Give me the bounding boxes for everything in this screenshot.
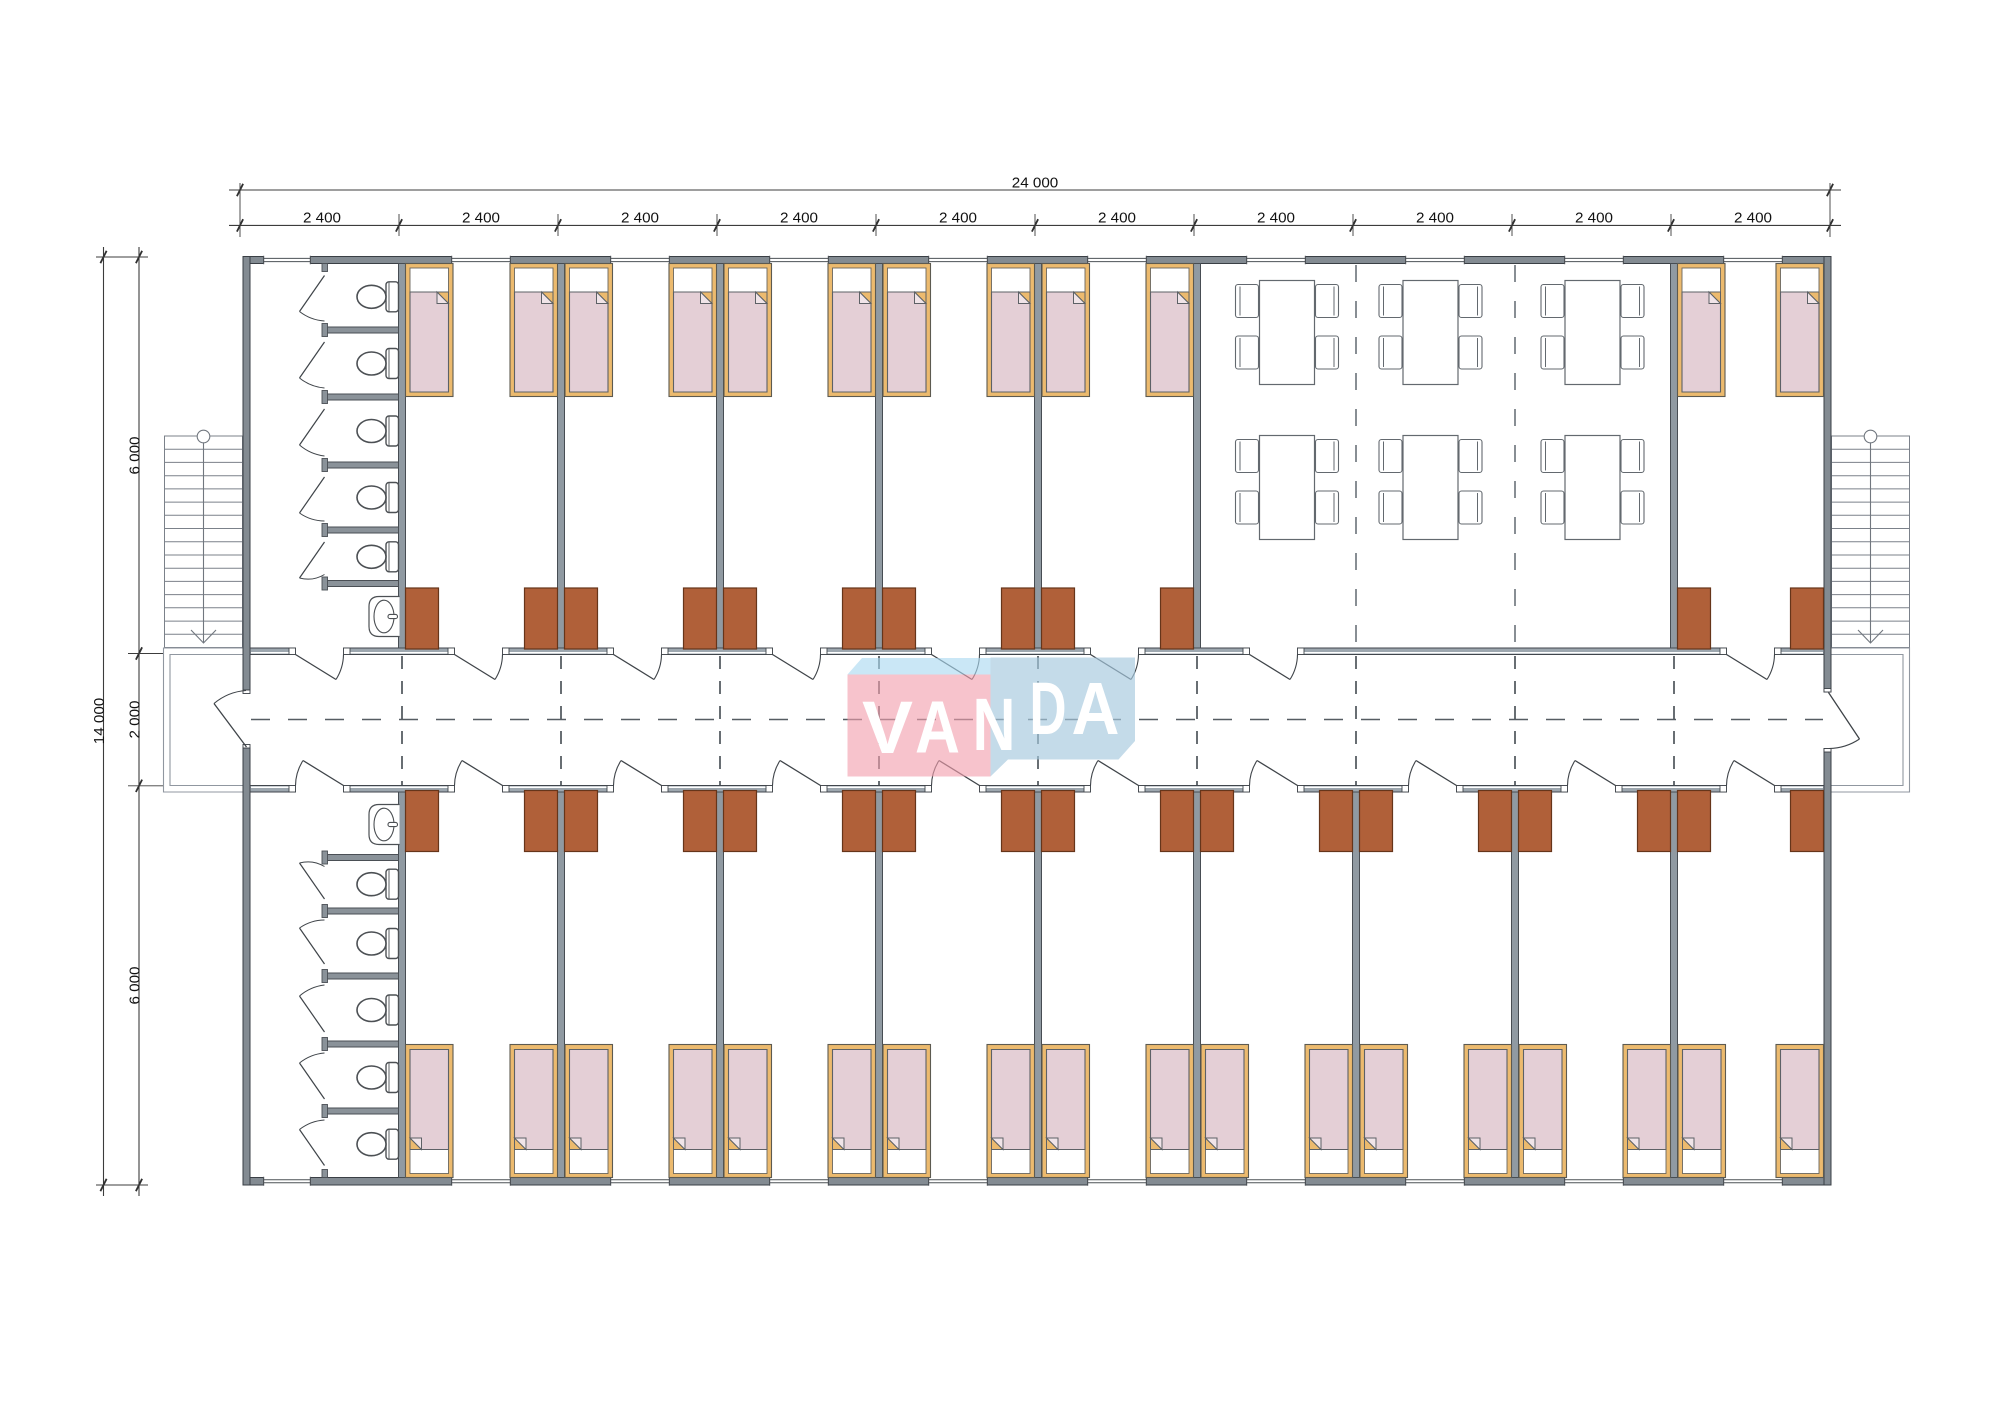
svg-text:6 000: 6 000 — [126, 436, 143, 474]
svg-text:2 400: 2 400 — [1098, 210, 1136, 227]
svg-text:2 400: 2 400 — [939, 210, 977, 227]
svg-text:A: A — [915, 686, 960, 769]
svg-text:2 400: 2 400 — [303, 210, 341, 227]
svg-text:2 400: 2 400 — [1734, 210, 1772, 227]
svg-text:2 400: 2 400 — [621, 210, 659, 227]
svg-text:24 000: 24 000 — [1012, 174, 1058, 191]
svg-text:2 000: 2 000 — [126, 700, 143, 738]
svg-text:A: A — [1072, 667, 1120, 750]
svg-text:D: D — [1030, 667, 1067, 750]
svg-text:2 400: 2 400 — [1257, 210, 1295, 227]
svg-text:14 000: 14 000 — [91, 698, 108, 744]
svg-text:6 000: 6 000 — [126, 966, 143, 1004]
svg-text:N: N — [973, 683, 1016, 766]
svg-text:2 400: 2 400 — [1575, 210, 1613, 227]
svg-text:V: V — [862, 686, 913, 769]
svg-text:2 400: 2 400 — [780, 210, 818, 227]
svg-text:2 400: 2 400 — [462, 210, 500, 227]
svg-text:2 400: 2 400 — [1416, 210, 1454, 227]
